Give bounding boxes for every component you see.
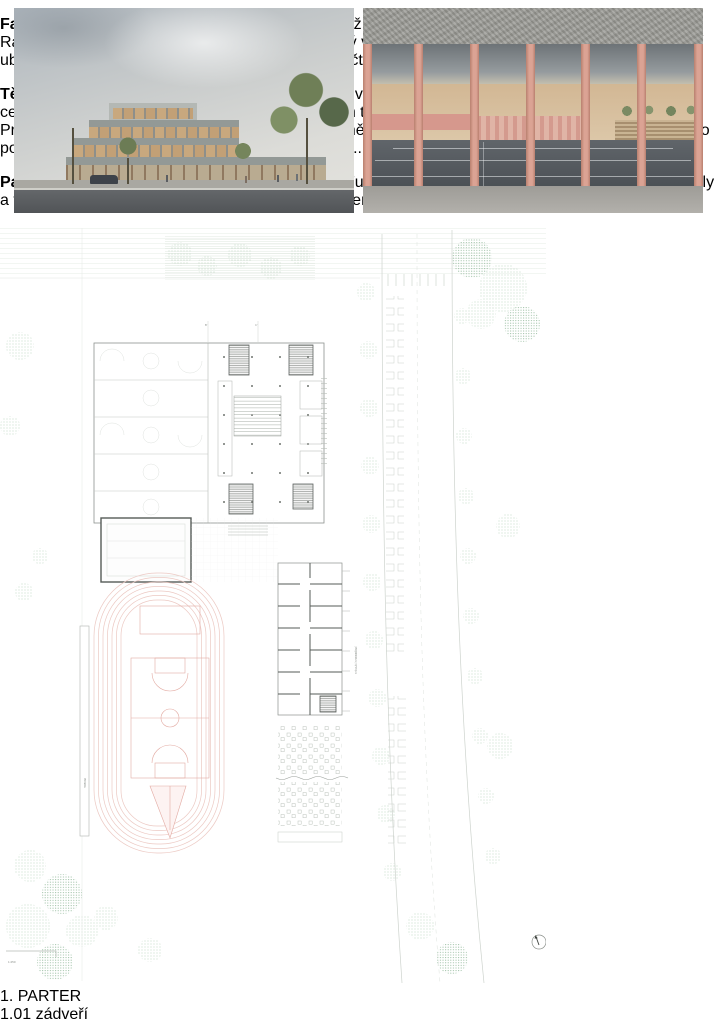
pedestrian	[166, 175, 168, 182]
facade-mullion	[526, 44, 535, 188]
legend-row: 1.01 zádveří	[0, 1006, 717, 1024]
south-wing-plan	[278, 563, 350, 715]
facade-mullion	[470, 44, 479, 188]
svg-text:B': B'	[205, 323, 208, 327]
pedestrian	[245, 176, 247, 183]
terrace-tables	[276, 726, 348, 842]
facade-mullion	[637, 44, 646, 188]
entry-plaza	[191, 518, 278, 582]
legend-room-code: 1.01	[0, 1006, 31, 1023]
top-floor-windows	[113, 108, 193, 119]
north-arrow-compass	[532, 935, 546, 949]
central-staircase	[234, 396, 281, 436]
slab-1	[66, 157, 326, 165]
plants	[615, 102, 701, 118]
loggia-ticks	[342, 571, 350, 711]
facade-mullion	[694, 44, 703, 188]
sunken-gym-hall	[101, 518, 191, 582]
competition-panel-sheet: Fasáda školy je tvořena fenestračními pá…	[0, 0, 717, 1024]
tree-canopy	[22, 18, 132, 138]
street-asphalt	[14, 190, 354, 213]
concrete-band	[363, 8, 703, 44]
pedestrian	[296, 174, 298, 181]
room-legend: 1. PARTER 1.01 zádveří 1.02 vstupní hala…	[0, 988, 717, 1024]
axis-ticks	[208, 321, 258, 343]
sidewalk	[14, 180, 354, 188]
shaft	[320, 696, 336, 712]
legend-room-name: zádveří	[36, 1006, 88, 1023]
legend-section-1-title: 1. PARTER	[0, 988, 717, 1006]
small-tree-canopy	[112, 130, 144, 164]
court-line	[483, 142, 484, 186]
facade-mullion	[414, 44, 423, 188]
small-tree-canopy	[228, 136, 258, 168]
parked-car	[90, 175, 118, 184]
foreground-pavement	[363, 186, 703, 213]
legend-rows-1: 1.01 zádveří 1.02 vstupní hala 1.03 šatn…	[0, 1006, 717, 1024]
bike-racks	[321, 375, 329, 467]
svg-text:C': C'	[255, 323, 258, 327]
facade-mullion	[581, 44, 590, 188]
pedestrian	[277, 175, 279, 182]
fence-wavy-line	[276, 777, 348, 780]
svg-text:TRIBUNA: TRIBUNA	[84, 777, 87, 788]
tree-canopy	[256, 50, 354, 160]
site-plan-drawing: TRIBUNA STÁVAJÍCÍ STROMOŘADÍ B' C' 1:250	[0, 226, 546, 983]
facade-mullion	[363, 44, 372, 188]
street-view-rendering	[14, 8, 354, 213]
slab-2	[74, 138, 239, 145]
school-floor-plan	[94, 321, 329, 523]
gym-interior-rendering	[363, 8, 703, 213]
svg-text:1:250: 1:250	[8, 960, 16, 964]
running-track	[94, 573, 224, 853]
tribune-strip	[80, 626, 89, 836]
svg-text:STÁVAJÍCÍ STROMOŘADÍ: STÁVAJÍCÍ STROMOŘADÍ	[355, 646, 358, 674]
